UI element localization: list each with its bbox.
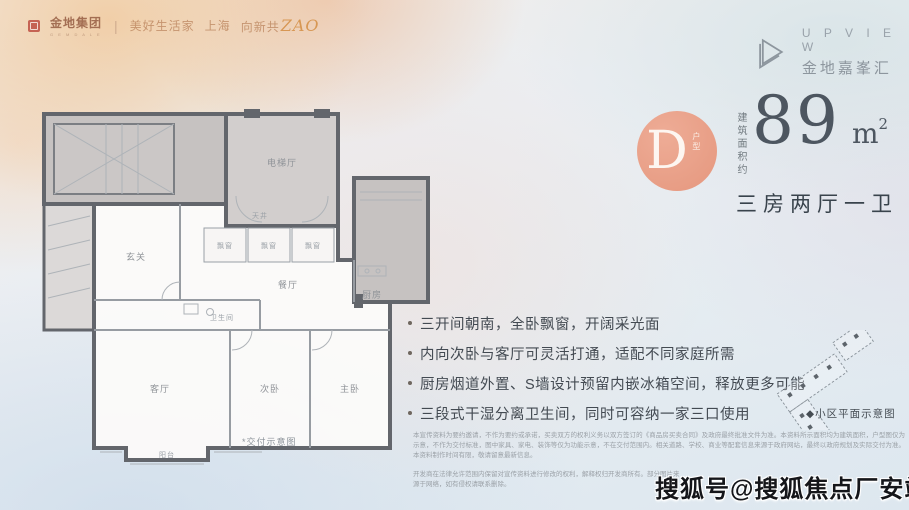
unit-type-letter: D bbox=[646, 125, 688, 177]
campaign-zao: ZAO bbox=[281, 16, 320, 35]
room-label: 主卧 bbox=[340, 383, 360, 394]
area-unit: m2 bbox=[852, 115, 888, 150]
layout-description: 三房两厅一卫 bbox=[736, 188, 898, 218]
feature-item: 厨房烟道外置、S墙设计预留内嵌冰箱空间，释放更多可能 bbox=[408, 368, 805, 398]
floor-plan: 电梯厅 飘窗 飘窗 飘窗 玄关 bbox=[30, 100, 430, 465]
campaign-label: 向新共ZAO bbox=[241, 16, 320, 35]
brand-text: U P V I E W 金地嘉峯汇 bbox=[802, 26, 909, 78]
room-label: 电梯厅 bbox=[267, 157, 297, 168]
area-unit-sup: 2 bbox=[879, 115, 889, 133]
upview-triangle-icon bbox=[752, 31, 790, 73]
room-label: 飘窗 bbox=[305, 241, 321, 250]
disclaimer-note: 开发商在法律允许范围内保留对宣传资料进行修改的权利，解释权归开发商所有。部分图片… bbox=[413, 470, 681, 490]
room-label: 天井 bbox=[252, 211, 268, 220]
area-label-vertical: 建筑面积约 bbox=[733, 112, 748, 177]
neighbour-unit bbox=[354, 178, 428, 302]
room-label: 卫生间 bbox=[210, 313, 234, 322]
room-label: 餐厅 bbox=[278, 279, 298, 290]
developer-name-block: 金地集团 G E M D A L E bbox=[50, 14, 102, 37]
unit-type-suffix: 户型 bbox=[691, 132, 702, 152]
room-label: 飘窗 bbox=[217, 241, 233, 250]
developer-name-en: G E M D A L E bbox=[50, 32, 102, 37]
city-label: 上海 bbox=[205, 17, 231, 34]
unit-type-badge: D 户型 bbox=[637, 111, 717, 191]
floorplan-caption: *交付示意图 bbox=[242, 436, 297, 447]
room-label: 飘窗 bbox=[261, 241, 277, 250]
feature-item: 三段式干湿分离卫生间，同时可容纳一家三口使用 bbox=[408, 398, 805, 428]
elevator-lobby bbox=[226, 114, 338, 226]
area-value: 89 bbox=[752, 88, 840, 154]
logo-divider: | bbox=[114, 18, 118, 34]
developer-name: 金地集团 bbox=[50, 14, 102, 31]
room-label: 阳台 bbox=[159, 450, 175, 459]
project-brand: U P V I E W 金地嘉峯汇 bbox=[752, 26, 909, 78]
feature-item: 内向次卧与客厅可灵活打通，适配不同家庭所需 bbox=[408, 338, 805, 368]
brand-name-cn: 金地嘉峯汇 bbox=[802, 57, 909, 78]
poster: 金地集团 G E M D A L E | 美好生活家 上海 向新共ZAO U P… bbox=[0, 0, 909, 510]
stair-strip bbox=[44, 204, 94, 330]
brand-name-en: U P V I E W bbox=[802, 26, 909, 54]
developer-logo-strip: 金地集团 G E M D A L E | 美好生活家 上海 向新共ZAO bbox=[28, 14, 320, 37]
siteplan-caption: ◆小区平面示意图 bbox=[806, 406, 896, 421]
room-label: 客厅 bbox=[150, 383, 170, 394]
gemdale-seal-icon bbox=[28, 20, 40, 32]
feature-item: 三开间朝南，全卧飘窗，开阔采光面 bbox=[408, 308, 805, 338]
sohu-watermark: 搜狐号@搜狐焦点厂安站 bbox=[655, 469, 909, 504]
disclaimer-paragraph: 本宣传资料为要约邀请，不作为要约或承诺，买卖双方的权利义务以双方签订的《商品房买… bbox=[413, 431, 905, 461]
area-row: 89 m2 bbox=[752, 88, 888, 154]
feature-list: 三开间朝南，全卧飘窗，开阔采光面 内向次卧与客厅可灵活打通，适配不同家庭所需 厨… bbox=[408, 308, 805, 428]
room-label: 厨房 bbox=[362, 289, 382, 300]
room-label: 次卧 bbox=[260, 383, 280, 394]
developer-slogan: 美好生活家 bbox=[130, 17, 195, 34]
room-label: 玄关 bbox=[126, 251, 146, 262]
